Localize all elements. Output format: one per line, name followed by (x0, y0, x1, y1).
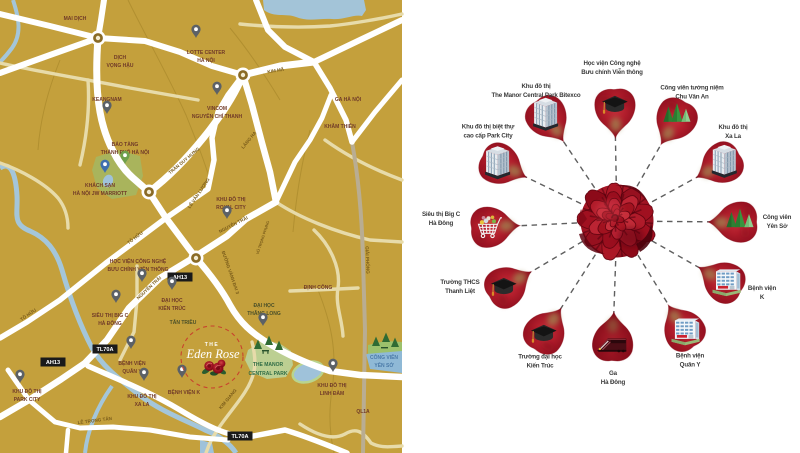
svg-text:PARK CITY: PARK CITY (14, 397, 41, 403)
svg-text:NGUYỄN CHÍ THANH: NGUYỄN CHÍ THANH (192, 112, 243, 120)
svg-text:Trường đại học: Trường đại học (518, 354, 562, 361)
svg-text:THE MANOR: THE MANOR (253, 362, 284, 368)
svg-text:KHU ĐÔ THỊ: KHU ĐÔ THỊ (127, 392, 157, 400)
svg-text:BỆNH VIỆN: BỆNH VIỆN (118, 359, 146, 367)
svg-text:ĐẠI HỌC: ĐẠI HỌC (161, 298, 183, 304)
svg-text:TL70A: TL70A (231, 434, 248, 440)
svg-text:DỊCH: DỊCH (114, 55, 127, 61)
svg-text:ĐẠI HỌC: ĐẠI HỌC (253, 303, 275, 309)
svg-text:The Manor Central Park Bitexco: The Manor Central Park Bitexco (491, 92, 580, 99)
svg-text:KHU ĐÔ THỊ: KHU ĐÔ THỊ (317, 381, 347, 389)
svg-text:Quân Y: Quân Y (680, 362, 702, 369)
svg-text:Yên Sở: Yên Sở (767, 223, 788, 230)
svg-text:TL70A: TL70A (96, 347, 113, 353)
svg-text:YÊN SỞ: YÊN SỞ (374, 361, 394, 369)
svg-text:HÀ NỘI: HÀ NỘI (197, 56, 215, 64)
svg-text:LINH ĐÀM: LINH ĐÀM (320, 390, 344, 397)
svg-text:Siêu thị Big C: Siêu thị Big C (422, 211, 461, 218)
svg-text:KHU ĐÔ THỊ: KHU ĐÔ THỊ (12, 387, 42, 395)
svg-text:BỆNH VIỆN K: BỆNH VIỆN K (168, 388, 201, 396)
svg-text:KHU ĐÔ THỊ: KHU ĐÔ THỊ (216, 195, 246, 203)
svg-text:HỌC VIỆN CÔNG NGHỆ: HỌC VIỆN CÔNG NGHỆ (110, 257, 167, 265)
svg-text:LOTTE CENTER: LOTTE CENTER (187, 50, 226, 56)
svg-text:Khu đô thị: Khu đô thị (718, 124, 748, 131)
svg-text:VINCOM: VINCOM (207, 106, 227, 112)
svg-text:QUÂN Y: QUÂN Y (122, 368, 142, 375)
svg-text:KIẾN TRÚC: KIẾN TRÚC (158, 305, 186, 312)
svg-text:Công viên tưởng niệm: Công viên tưởng niệm (660, 85, 724, 92)
svg-text:SIÊU THỊ BIG C: SIÊU THỊ BIG C (92, 311, 129, 319)
svg-text:GA HÀ NỘI: GA HÀ NỘI (335, 95, 362, 103)
svg-text:XA LA: XA LA (135, 402, 150, 408)
svg-text:Chu Văn An: Chu Văn An (675, 94, 709, 101)
svg-text:Công viên: Công viên (763, 214, 792, 221)
svg-text:Bưu chính Viễn thông: Bưu chính Viễn thông (581, 69, 643, 76)
svg-text:HÀ NỘI JW MARRIOTT: HÀ NỘI JW MARRIOTT (73, 189, 127, 197)
svg-text:HÀ ĐÔNG: HÀ ĐÔNG (98, 319, 122, 327)
svg-text:BẢO TÀNG: BẢO TÀNG (112, 141, 139, 148)
svg-text:Khu đô thị biệt thự: Khu đô thị biệt thự (462, 124, 515, 131)
svg-text:Trường THCS: Trường THCS (440, 279, 479, 286)
svg-text:K: K (760, 294, 765, 301)
svg-text:ĐỊNH CÔNG: ĐỊNH CÔNG (304, 283, 333, 291)
svg-text:Khu đô thị: Khu đô thị (521, 83, 551, 90)
svg-text:Hà Đông: Hà Đông (601, 379, 626, 386)
svg-text:CENTRAL PARK: CENTRAL PARK (249, 371, 288, 377)
svg-text:KHÁCH SẠN: KHÁCH SẠN (85, 182, 115, 189)
svg-text:Ga: Ga (609, 370, 618, 377)
svg-text:MAI DỊCH: MAI DỊCH (64, 16, 87, 22)
svg-text:Hà Đông: Hà Đông (429, 220, 454, 227)
svg-text:AH13: AH13 (46, 360, 60, 366)
svg-text:QL1A: QL1A (356, 409, 370, 415)
svg-text:VỌNG HẬU: VỌNG HẬU (107, 62, 134, 69)
svg-text:Bệnh viện: Bệnh viện (748, 285, 777, 292)
svg-text:Bệnh viện: Bệnh viện (676, 353, 705, 360)
svg-text:Thanh Liệt: Thanh Liệt (445, 288, 475, 295)
svg-text:KHÂM THIÊN: KHÂM THIÊN (324, 122, 356, 130)
svg-text:Học viện Công nghệ: Học viện Công nghệ (583, 60, 641, 67)
svg-text:cao cấp Park City: cao cấp Park City (463, 133, 513, 140)
svg-text:Eden Rose: Eden Rose (185, 347, 240, 361)
svg-text:Kiến Trúc: Kiến Trúc (527, 363, 555, 370)
svg-text:Xa La: Xa La (725, 133, 741, 140)
svg-text:CÔNG VIÊN: CÔNG VIÊN (370, 353, 398, 361)
svg-text:TÂN TRIỀU: TÂN TRIỀU (170, 319, 197, 326)
